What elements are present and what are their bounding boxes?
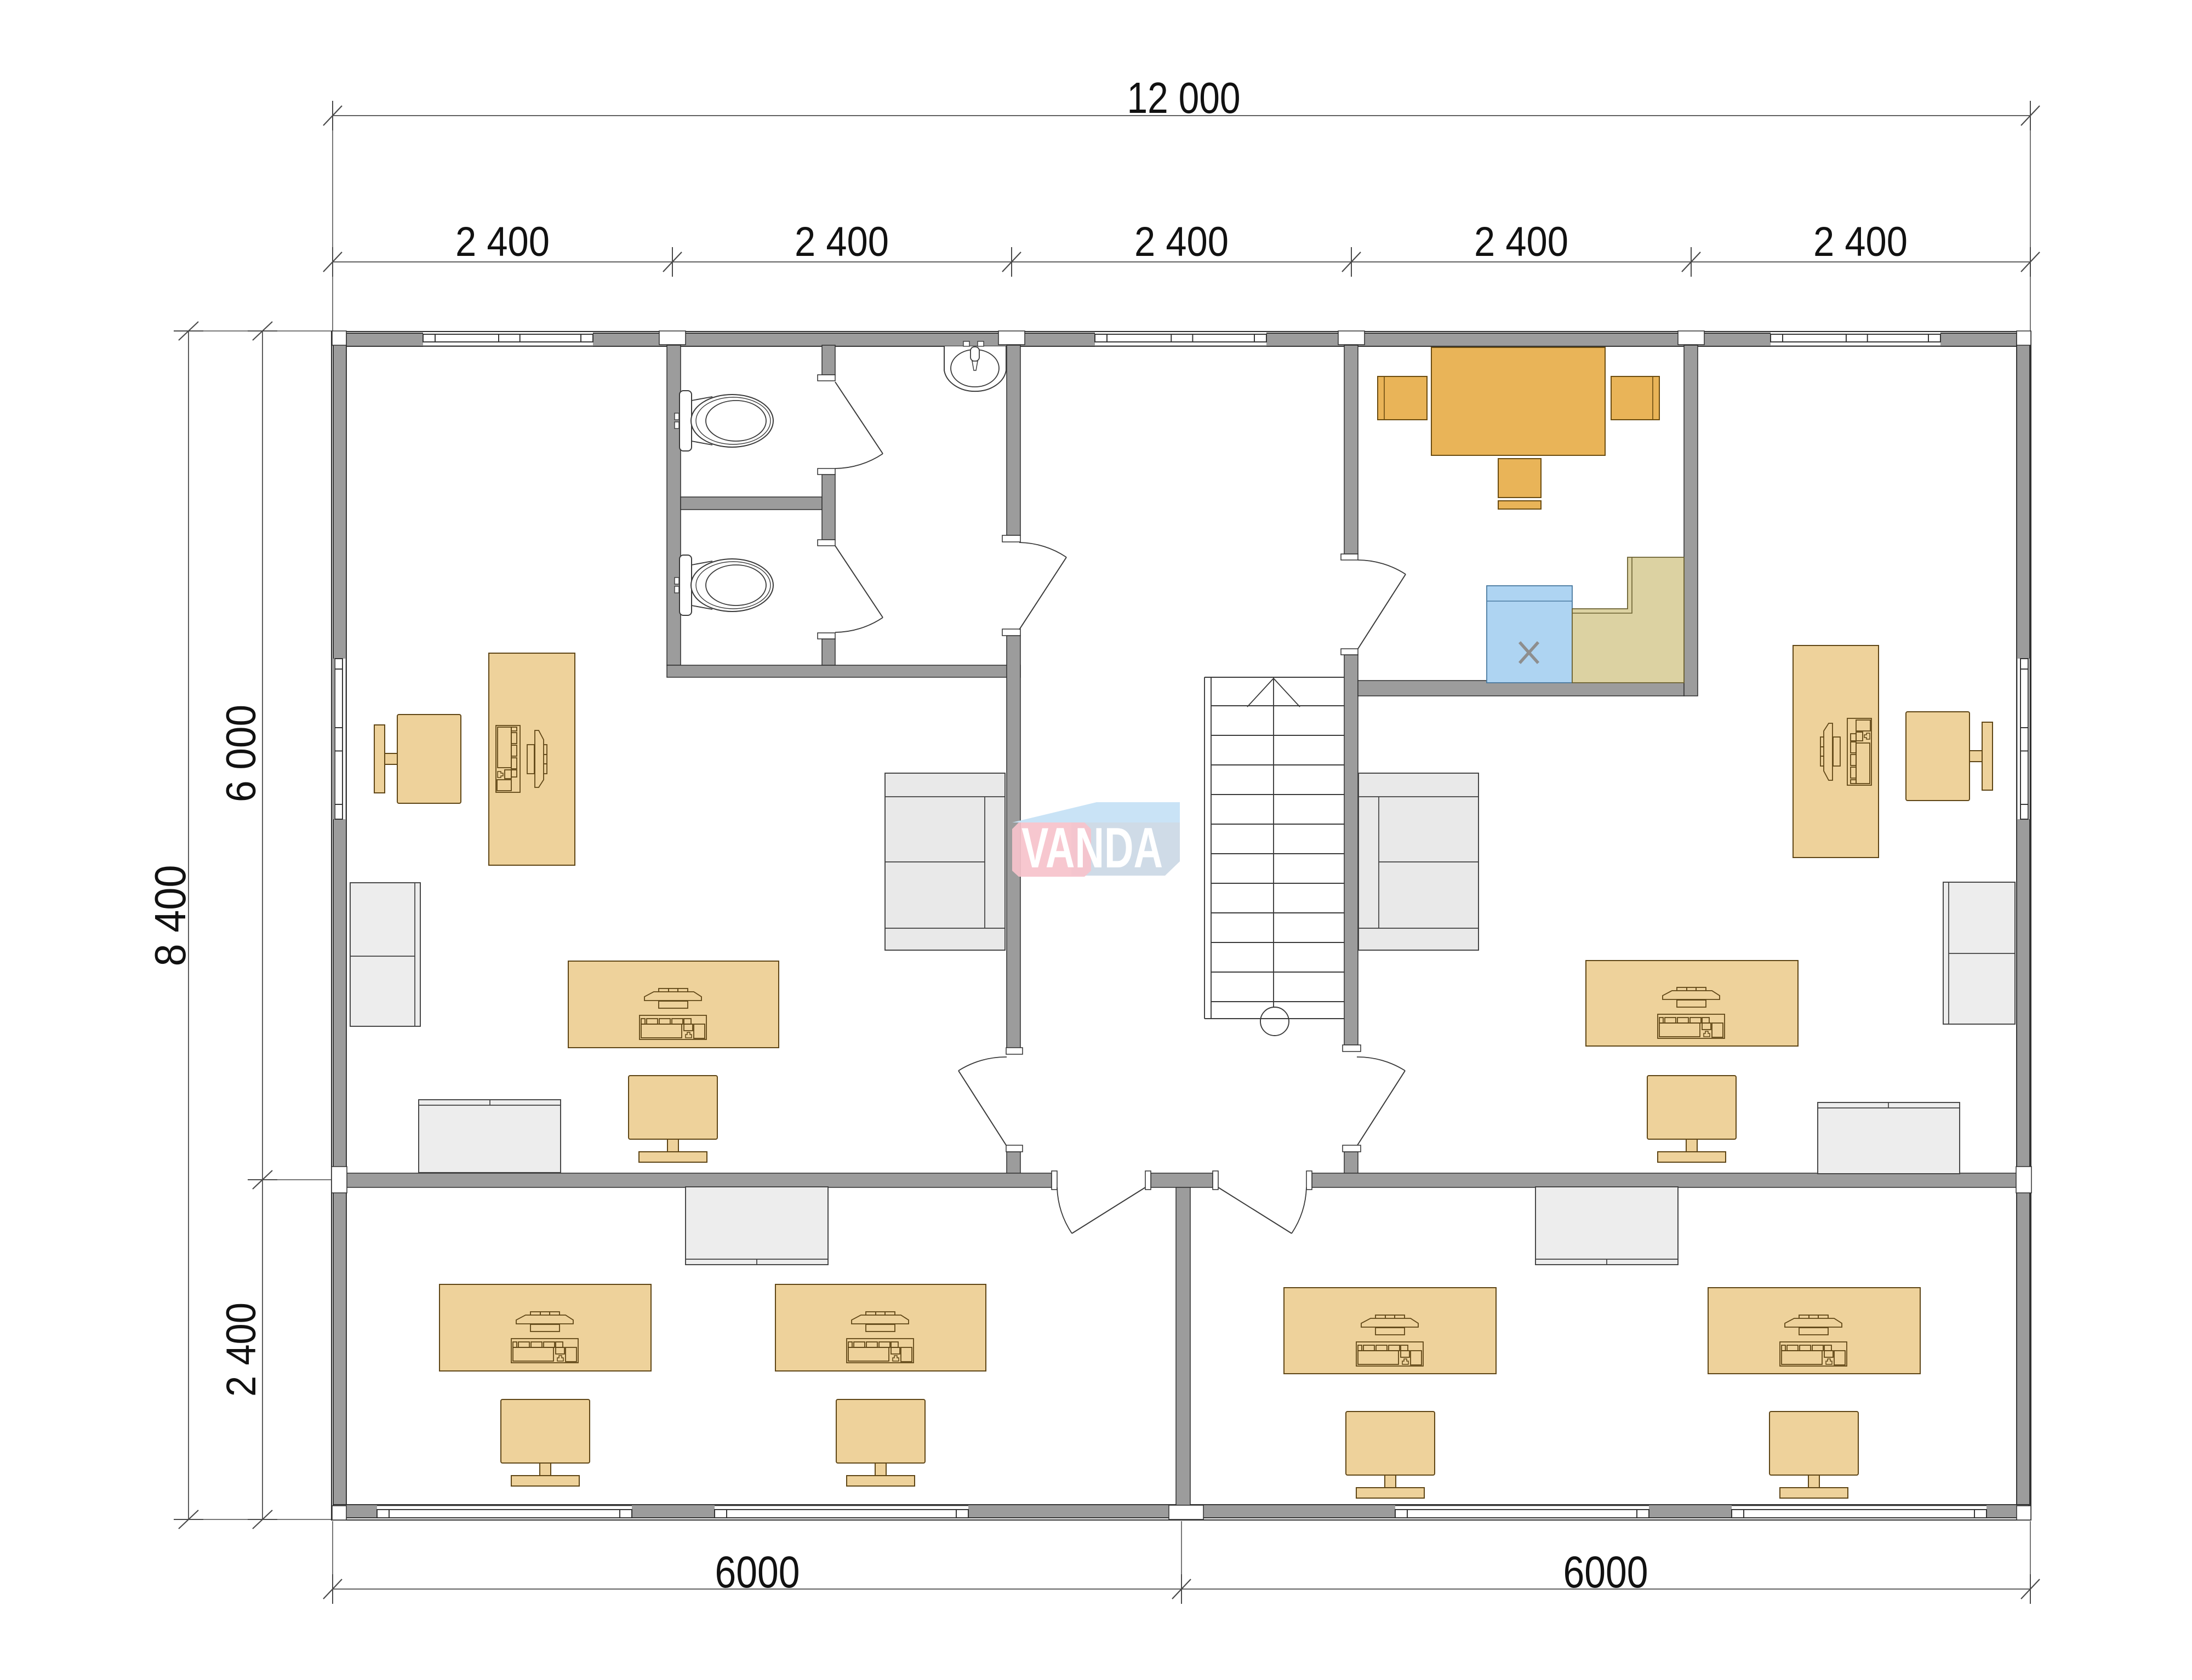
svg-text:2 400: 2 400 [1474,219,1568,265]
svg-text:8 400: 8 400 [146,865,195,967]
svg-text:2 400: 2 400 [455,219,550,265]
svg-text:6 000: 6 000 [218,705,265,802]
svg-text:2 400: 2 400 [1134,219,1229,265]
svg-text:2 400: 2 400 [218,1302,265,1397]
svg-text:2 400: 2 400 [1813,219,1908,265]
svg-text:VANDA: VANDA [1021,816,1163,880]
svg-text:2 400: 2 400 [795,219,889,265]
svg-text:6000: 6000 [1563,1547,1648,1597]
svg-text:6000: 6000 [715,1547,800,1597]
svg-text:12 000: 12 000 [1127,73,1241,122]
